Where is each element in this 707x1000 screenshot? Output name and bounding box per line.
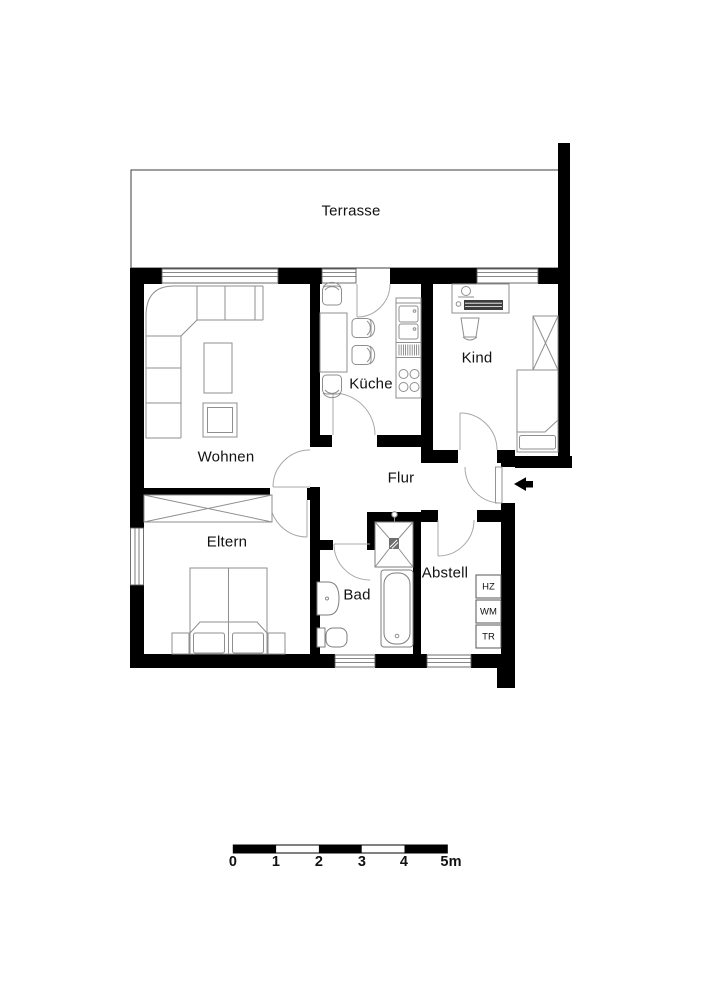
window-abstell [427, 655, 471, 667]
scale-label-1: 1 [272, 854, 280, 870]
door-abstell [438, 520, 474, 556]
window-wohnen [162, 269, 278, 283]
chair [323, 375, 342, 398]
window-bad [335, 655, 375, 667]
room-label-eltern: Eltern [207, 534, 247, 551]
entrance-arrow-icon [514, 477, 533, 491]
room-label-wohnen: Wohnen [198, 449, 255, 466]
wardrobe [533, 316, 558, 370]
door-kind [460, 413, 497, 450]
door-bad [334, 544, 370, 580]
room-label-flur: Flur [388, 470, 415, 487]
hz-label: HZ [482, 581, 495, 592]
door-entrance [465, 467, 502, 503]
tr-label: TR [482, 631, 495, 642]
dining-table [320, 313, 347, 372]
door-wohnen [273, 450, 310, 487]
floorplan-drawing [0, 0, 707, 1000]
chair [352, 319, 375, 338]
kitchen-counter [396, 298, 421, 398]
desk [452, 284, 509, 313]
toilet [317, 628, 347, 647]
scale-label-3: 3 [358, 854, 366, 870]
nightstand [268, 633, 285, 654]
double-bed [172, 568, 285, 654]
desk-chair [461, 318, 479, 340]
bathtub [381, 570, 413, 647]
nightstand [172, 633, 189, 654]
window-kind [477, 269, 538, 283]
scale-label-5m: 5m [440, 854, 461, 870]
scale-label-4: 4 [400, 854, 408, 870]
wardrobe [144, 495, 272, 522]
room-label-kueche: Küche [349, 376, 393, 393]
room-label-terrasse: Terrasse [321, 203, 380, 220]
scale-bar [233, 845, 447, 853]
window-kueche [322, 269, 356, 283]
chair [323, 282, 342, 305]
window-eltern [131, 528, 144, 585]
chair [352, 346, 375, 365]
bed [517, 370, 558, 452]
floorplan: Terrasse Wohnen Küche Kind Flur Eltern B… [0, 0, 707, 1000]
door-kueche [333, 393, 375, 435]
stool [203, 403, 237, 437]
scale-label-0: 0 [229, 854, 237, 870]
room-label-abstell: Abstell [422, 565, 468, 582]
washbasin [317, 582, 339, 615]
wm-label: WM [480, 606, 497, 617]
door-eltern [270, 500, 307, 537]
coffee-table [204, 343, 232, 393]
room-label-kind: Kind [462, 350, 493, 367]
room-label-bad: Bad [343, 587, 370, 604]
door-terrace [357, 284, 390, 317]
scale-label-2: 2 [315, 854, 323, 870]
